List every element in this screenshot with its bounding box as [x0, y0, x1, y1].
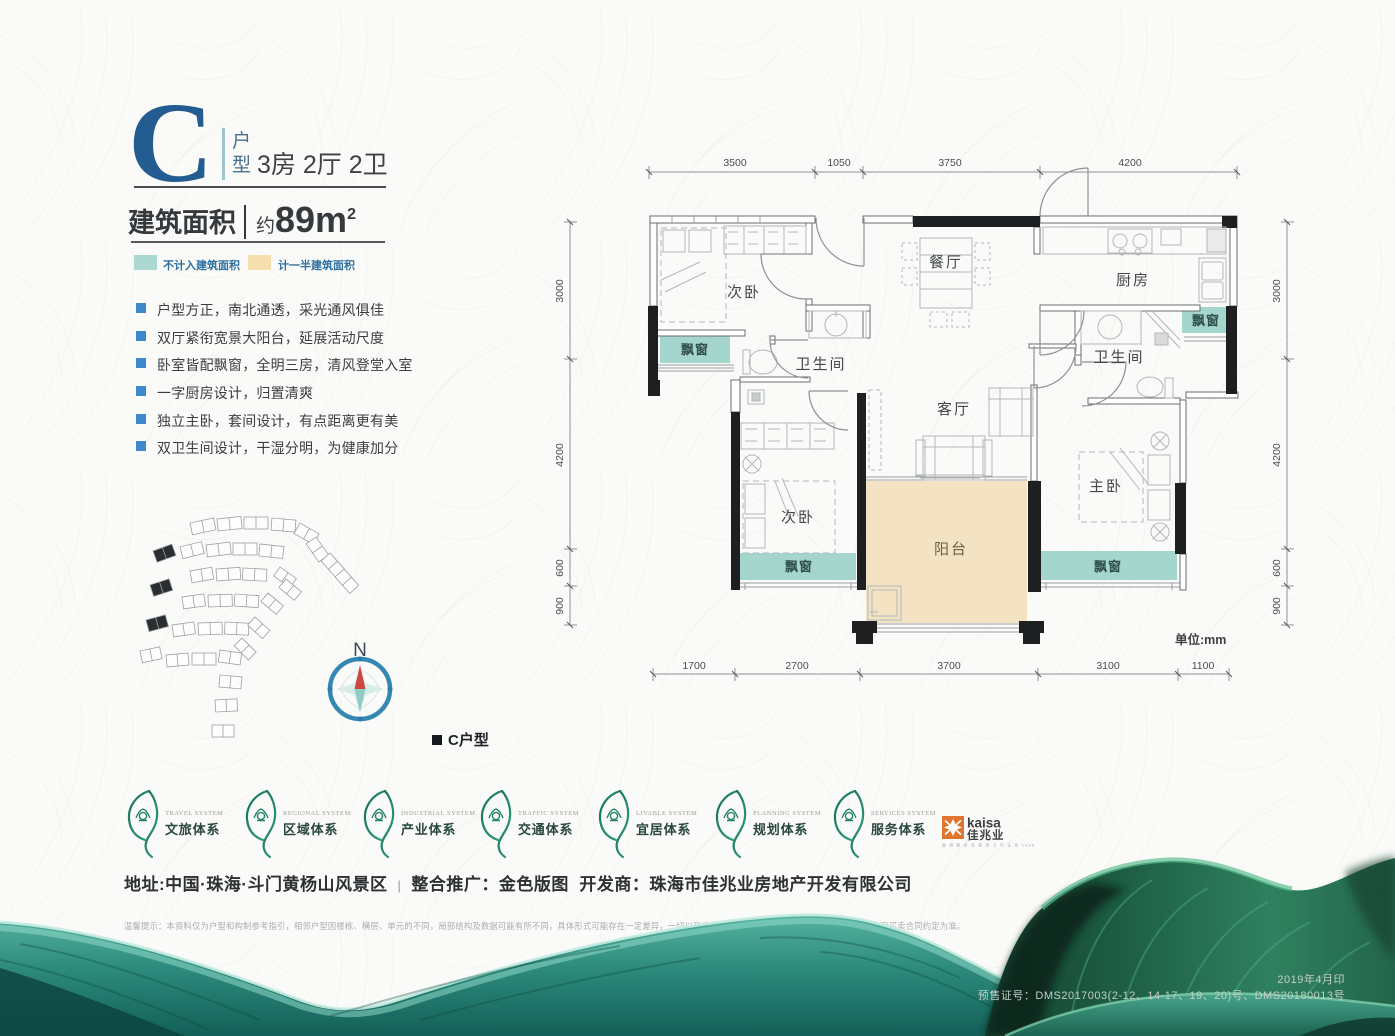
svg-text:kaisa: kaisa — [967, 816, 1001, 831]
svg-text:SERVICES SYSTEM: SERVICES SYSTEM — [871, 810, 936, 817]
svg-text:客厅: 客厅 — [937, 401, 971, 418]
svg-text:3700: 3700 — [937, 660, 961, 672]
svg-text:600: 600 — [554, 559, 566, 577]
svg-text:厨房: 厨房 — [1116, 272, 1150, 289]
svg-text:3750: 3750 — [938, 157, 962, 169]
svg-text:次卧: 次卧 — [727, 284, 761, 301]
svg-text:主卧: 主卧 — [1089, 478, 1123, 495]
svg-text:文旅体系: 文旅体系 — [165, 822, 220, 837]
svg-text:阳台: 阳台 — [934, 541, 968, 558]
svg-text:2700: 2700 — [785, 660, 809, 672]
svg-text:规划体系: 规划体系 — [753, 822, 808, 837]
svg-text:飘窗: 飘窗 — [681, 342, 709, 357]
svg-text:3000: 3000 — [1271, 279, 1283, 303]
svg-text:产业体系: 产业体系 — [401, 822, 456, 837]
svg-text:PLANNING SYSTEM: PLANNING SYSTEM — [753, 810, 821, 817]
svg-text:INDUSTRIAL SYSTEM: INDUSTRIAL SYSTEM — [401, 810, 476, 817]
svg-text:4200: 4200 — [554, 443, 566, 467]
svg-text:飘窗: 飘窗 — [785, 559, 813, 574]
svg-text:飘窗: 飘窗 — [1094, 559, 1122, 574]
svg-text:卫生间: 卫生间 — [795, 356, 846, 373]
svg-text:服务体系: 服务体系 — [871, 822, 926, 837]
svg-text:区域体系: 区域体系 — [283, 822, 338, 837]
svg-text:LIVABLE SYSTEM: LIVABLE SYSTEM — [636, 810, 697, 817]
svg-text:3500: 3500 — [723, 157, 747, 169]
svg-text:600: 600 — [1271, 559, 1283, 577]
svg-text:1050: 1050 — [827, 157, 851, 169]
svg-text:TRAVEL SYSTEM: TRAVEL SYSTEM — [165, 810, 223, 817]
svg-text:交通体系: 交通体系 — [518, 822, 573, 837]
svg-text:3100: 3100 — [1096, 660, 1120, 672]
svg-text:900: 900 — [554, 597, 566, 615]
svg-text:1100: 1100 — [1192, 660, 1215, 672]
svg-text:TRAFFIC SYSTEM: TRAFFIC SYSTEM — [518, 810, 579, 817]
svg-text:次卧: 次卧 — [781, 509, 815, 526]
svg-text:飘窗: 飘窗 — [1192, 313, 1220, 328]
svg-text:餐厅: 餐厅 — [929, 254, 963, 271]
svg-text:4200: 4200 — [1118, 157, 1142, 169]
svg-text:宜居体系: 宜居体系 — [636, 822, 691, 837]
svg-text:3000: 3000 — [554, 279, 566, 303]
svg-text:REGIONAL SYSTEM: REGIONAL SYSTEM — [283, 810, 351, 817]
svg-text:900: 900 — [1271, 597, 1283, 615]
svg-text:卫生间: 卫生间 — [1093, 349, 1144, 366]
svg-text:1700: 1700 — [682, 660, 706, 672]
svg-text:4200: 4200 — [1271, 443, 1283, 467]
